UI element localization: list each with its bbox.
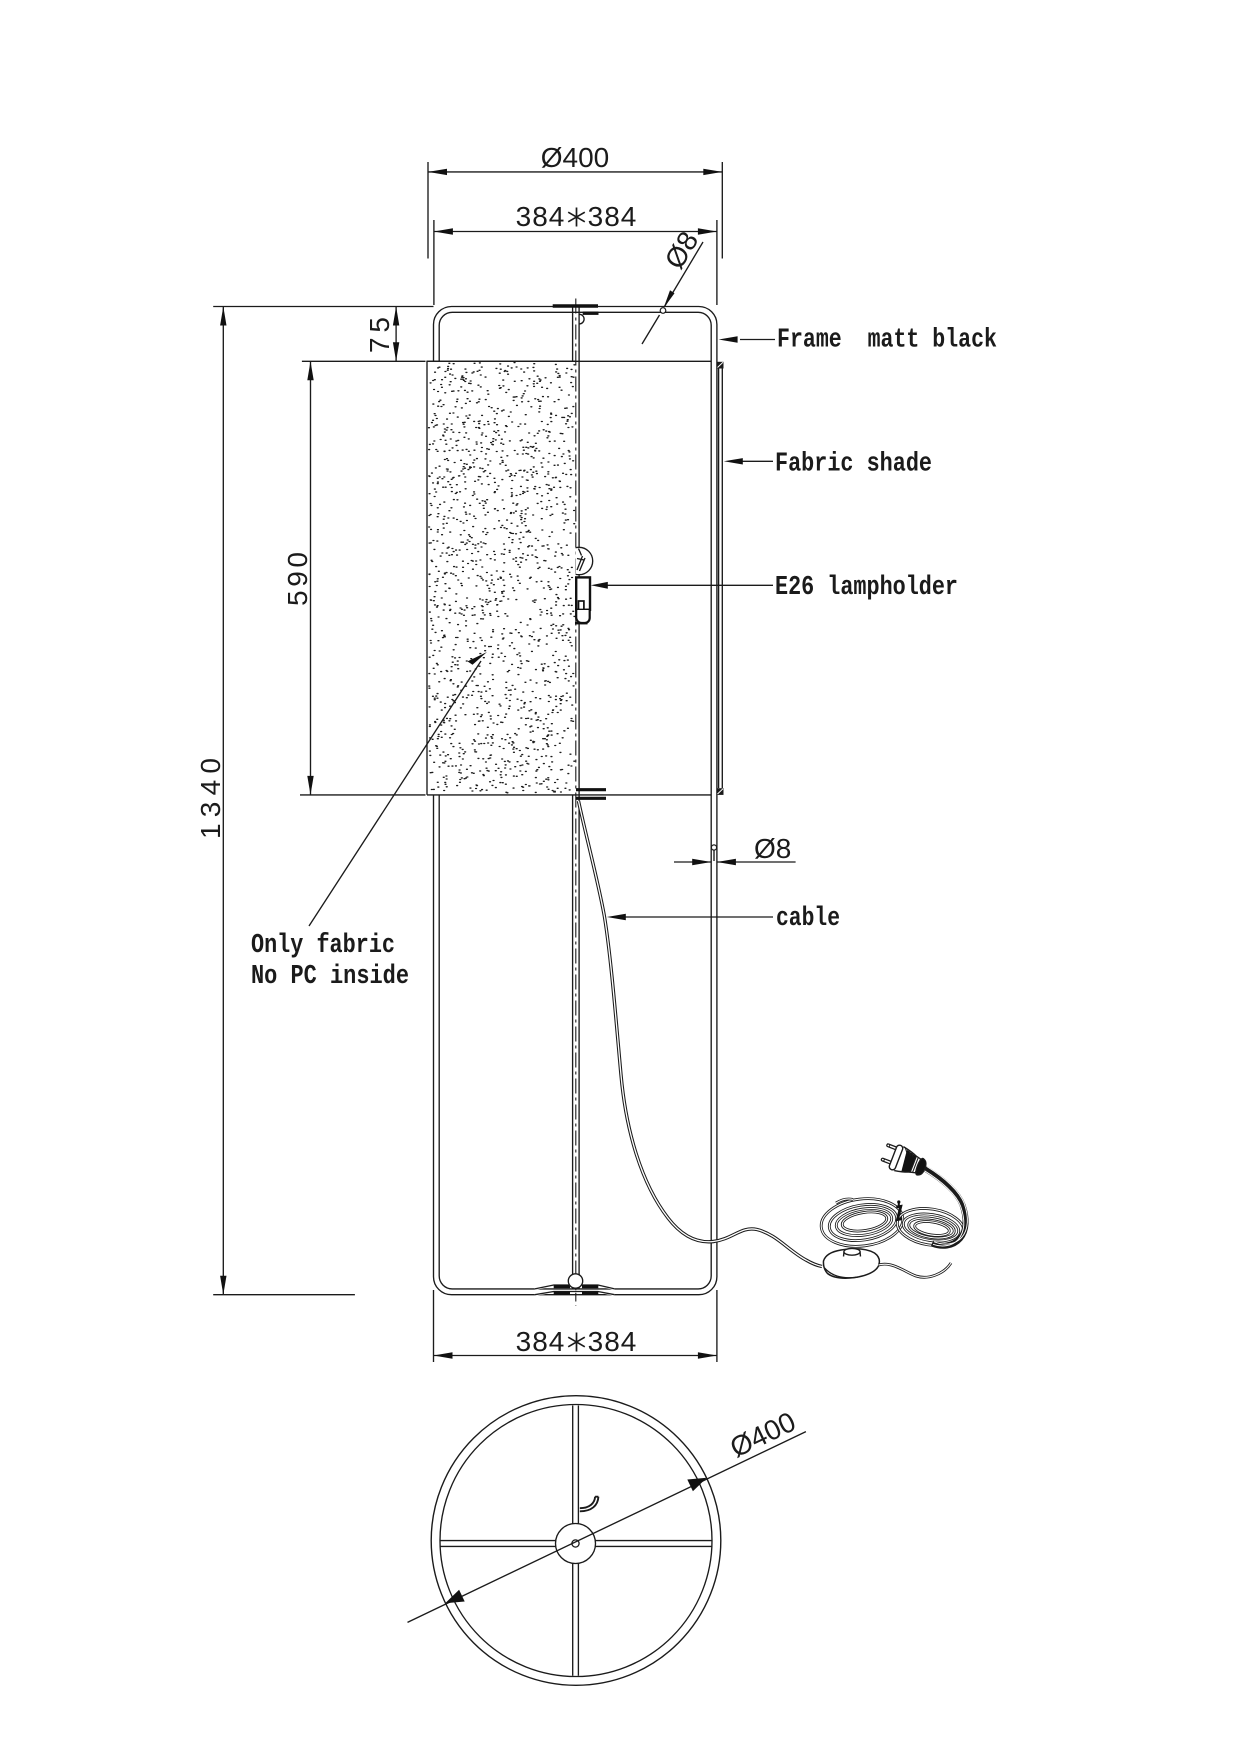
svg-text:Ø400: Ø400: [541, 142, 610, 173]
svg-text:Ø8: Ø8: [754, 833, 791, 864]
svg-text:cable: cable: [776, 904, 840, 934]
svg-text:No PC inside: No PC inside: [251, 962, 409, 992]
svg-text:Fabric shade: Fabric shade: [775, 450, 932, 480]
svg-text:590: 590: [282, 552, 313, 606]
svg-text:384: 384: [588, 201, 638, 232]
svg-text:Only fabric: Only fabric: [251, 931, 395, 961]
svg-text:Frame matt black: Frame matt black: [777, 326, 997, 356]
svg-text:E26 lampholder: E26 lampholder: [775, 573, 958, 603]
svg-text:384: 384: [516, 1326, 566, 1357]
svg-text:384: 384: [588, 1326, 638, 1357]
svg-text:384: 384: [516, 201, 566, 232]
